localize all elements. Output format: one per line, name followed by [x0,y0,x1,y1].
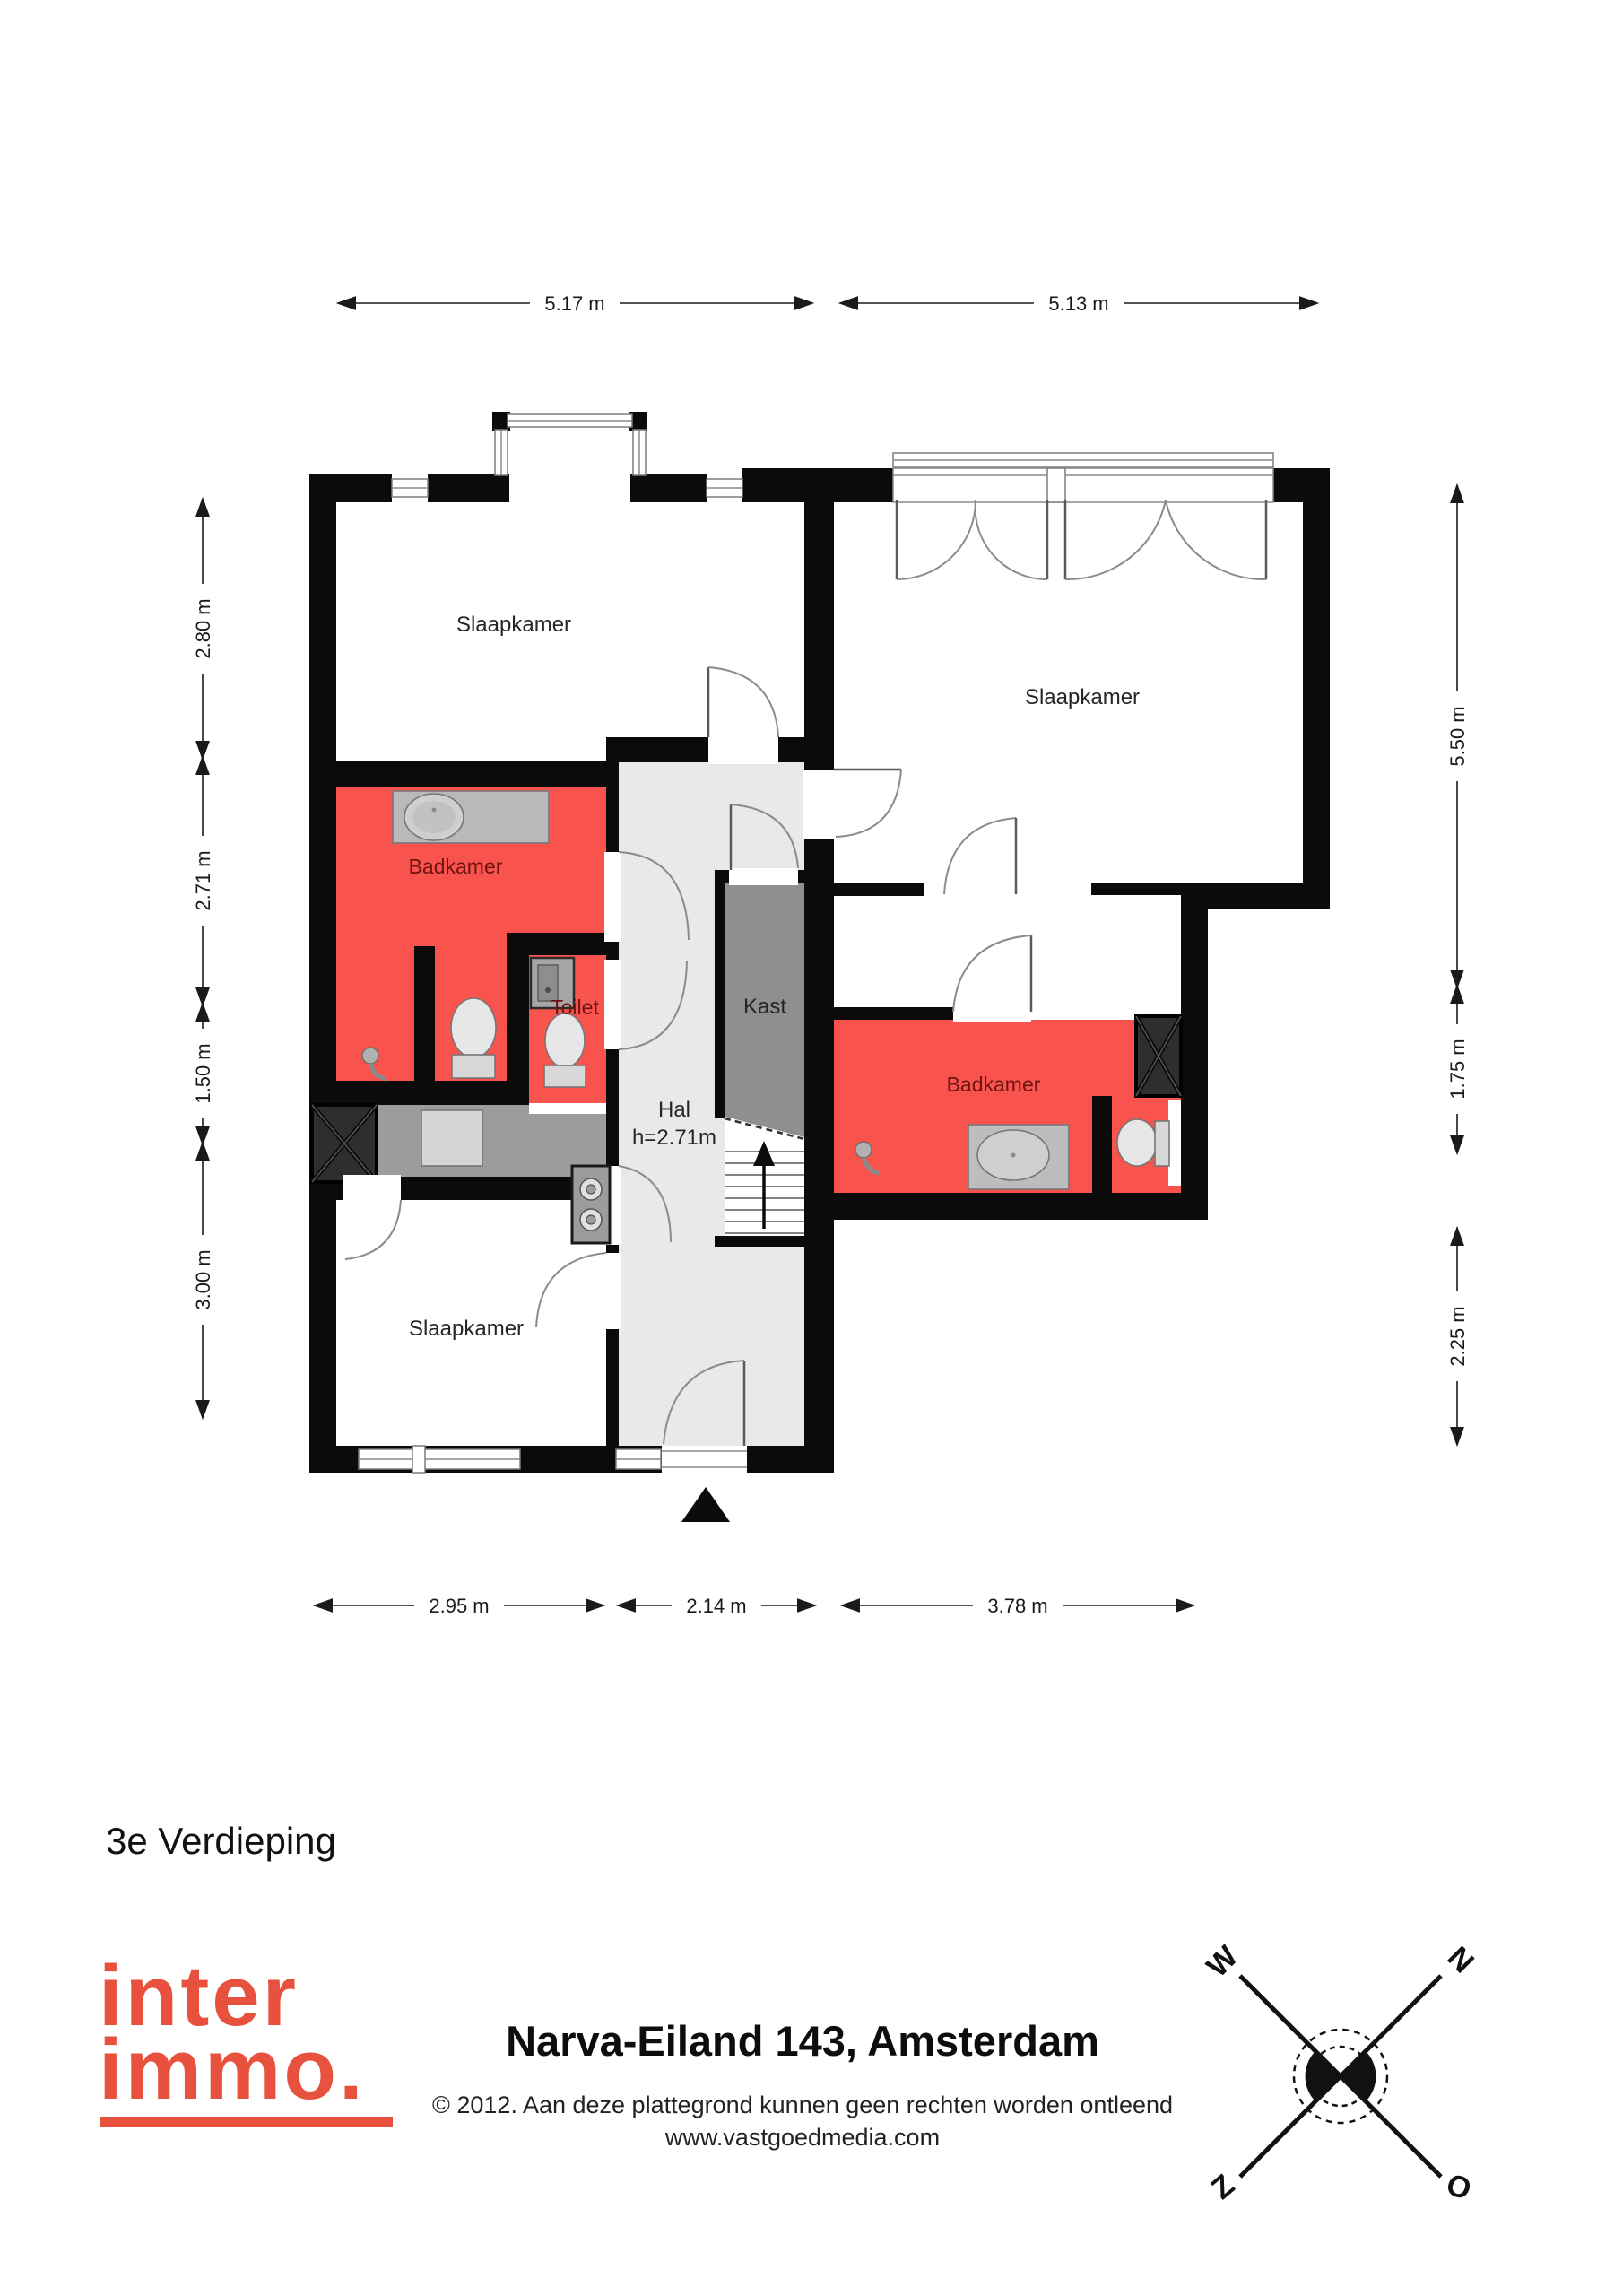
floorplan-page: { "floor_label": "3e Verdieping", "rooms… [0,0,1623,2296]
toilet-icon [451,998,496,1078]
room-label-slaapkamer-top-right: Slaapkamer [1025,685,1140,709]
dim-left-1: 2.80 m [192,598,214,658]
website-line: www.vastgoedmedia.com [664,2124,940,2151]
shaft-left-icon [312,1105,377,1182]
dim-left-3: 1.50 m [192,1043,214,1103]
dim-bottom-3: 3.78 m [987,1595,1047,1617]
logo-line2: immo. [99,2022,366,2118]
address-title: Narva-Eiland 143, Amsterdam [506,2017,1099,2065]
dim-bottom-1: 2.95 m [429,1595,489,1617]
room-label-hal: Hal [658,1098,690,1122]
dim-right-1: 5.50 m [1446,706,1469,766]
compass-rose-icon: N W Z O [1200,1939,1480,2207]
toilet-icon [544,1013,586,1087]
french-doors-icon [897,500,1266,579]
floor-label: 3e Verdieping [106,1820,336,1862]
compass-z: Z [1205,2168,1241,2205]
sink-icon [393,791,549,843]
room-label-badkamer-left: Badkamer [409,855,503,878]
boiler-closet-icon [572,1166,610,1243]
logo-underline [100,2117,393,2127]
dim-left-4: 3.00 m [192,1249,214,1309]
dim-left-2: 2.71 m [192,850,214,910]
washbasin-icon [421,1110,482,1166]
dim-top-1: 5.17 m [544,292,604,315]
logo: inter immo. [99,1948,393,2127]
shaft-right-icon [1136,1016,1181,1096]
compass-o: O [1442,2167,1476,2207]
room-label-hal-height: h=2.71m [632,1126,716,1150]
room-label-slaapkamer-top-left: Slaapkamer [456,613,571,637]
floor-plan: Slaapkamer Slaapkamer Slaapkamer Badkame… [0,0,1623,2296]
dim-top-2: 5.13 m [1048,292,1108,315]
sink-icon [968,1125,1069,1189]
entrance-marker-icon [681,1487,730,1522]
compass-n: N [1441,1940,1480,1979]
copyright-line: © 2012. Aan deze plattegrond kunnen geen… [432,2092,1173,2118]
room-label-badkamer-right: Badkamer [947,1073,1041,1096]
compass-w: W [1200,1939,1245,1984]
room-label-toilet: Toilet [551,996,599,1019]
room-label-slaapkamer-bottom: Slaapkamer [409,1317,524,1341]
dim-right-3: 2.25 m [1446,1306,1469,1366]
dim-right-2: 1.75 m [1446,1039,1469,1099]
dim-bottom-2: 2.14 m [686,1595,746,1617]
room-label-kast: Kast [743,995,786,1019]
